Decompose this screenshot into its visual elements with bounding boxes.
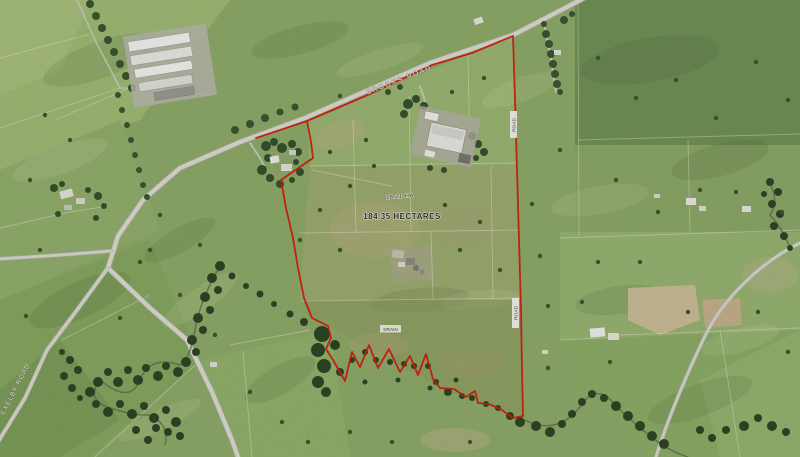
- aerial-map: BROOKS ROAD EXELBY ROAD ROAD ROAD 18.21 …: [0, 0, 800, 457]
- photo-grain-overlay: [0, 0, 800, 457]
- aerial-map-stage: BROOKS ROAD EXELBY ROAD ROAD ROAD 18.21 …: [0, 0, 800, 457]
